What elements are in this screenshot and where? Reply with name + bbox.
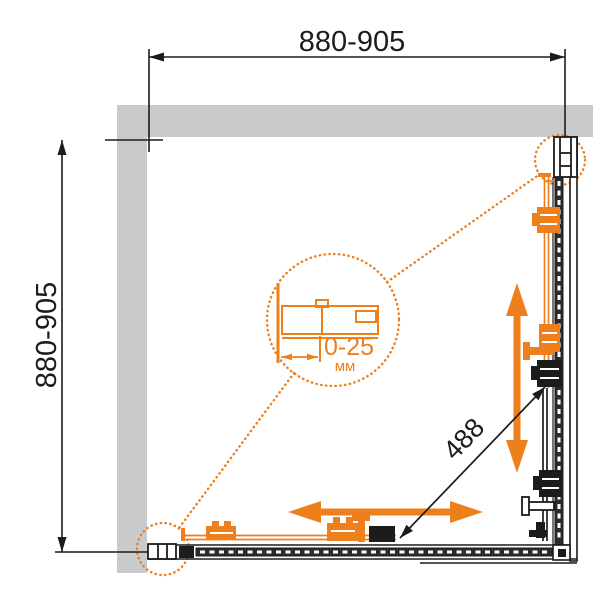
callout-connector-top-right	[387, 174, 540, 282]
horizontal-slide-arrow	[288, 501, 483, 523]
detail-magnifier-circle	[267, 254, 399, 386]
detail-unit-label: мм	[335, 358, 356, 375]
shower-enclosure-technical-drawing: 880-905 880-905	[0, 0, 610, 600]
right-door-assembly	[522, 137, 577, 561]
right-fixed-panel	[543, 388, 547, 541]
right-roller-middle	[523, 324, 560, 360]
slide-direction-arrows	[288, 283, 528, 523]
vertical-slide-arrow	[506, 283, 528, 473]
wall-left	[117, 105, 147, 573]
wall-top	[117, 105, 593, 137]
bottom-door-assembly	[148, 515, 577, 563]
bottom-roller-black	[369, 526, 395, 542]
right-tee-bracket	[522, 497, 554, 515]
detail-range-label: 0-25	[324, 333, 374, 361]
dim-arrow-top	[58, 140, 67, 155]
detail-dim-arrow-right	[307, 354, 318, 360]
diagonal-dimension-label: 488	[437, 412, 490, 465]
detail-dim-arrow-left	[281, 354, 292, 360]
right-roller-top	[532, 207, 560, 233]
bottom-roller-left	[206, 521, 236, 540]
top-width-label: 880-905	[299, 26, 405, 58]
right-outer-profile	[570, 137, 577, 561]
right-corner-elbow	[529, 522, 547, 538]
right-bracket-lower	[533, 470, 562, 497]
bottom-left-block	[179, 546, 194, 558]
bottom-left-wall-profile	[148, 544, 194, 559]
dim-arrow-bottom	[58, 537, 67, 552]
right-wall-bracket	[554, 137, 577, 177]
dim-arrow-left	[149, 53, 164, 62]
drawing-canvas: 880-905 880-905	[0, 0, 610, 600]
left-height-label: 880-905	[31, 282, 63, 388]
callout-connector-bottom-left	[179, 373, 294, 528]
bottom-right-corner	[553, 545, 570, 560]
dim-arrow-right	[550, 53, 565, 62]
right-roller-black	[531, 360, 562, 387]
